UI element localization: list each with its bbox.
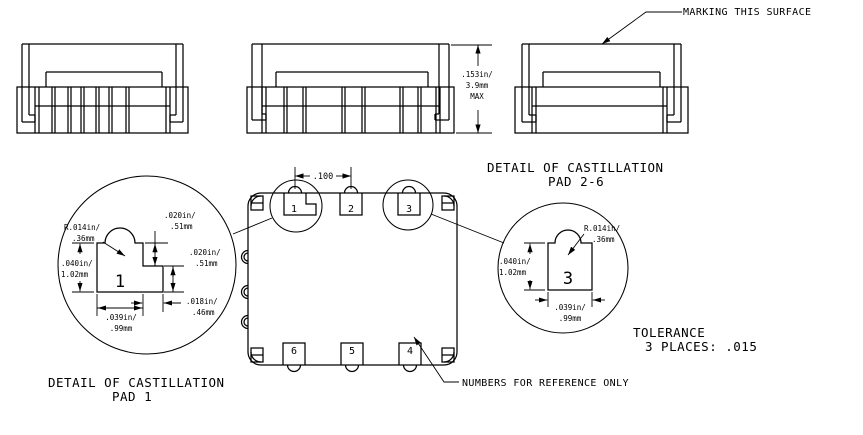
d1-step-height-line2: .51mm xyxy=(195,259,218,268)
d1-width-line2: .99mm xyxy=(110,324,133,333)
detail-pad1-title: DETAIL OF CASTILLATION xyxy=(48,375,225,390)
detail-pad1: 1 R.014in/ .36mm .020in/ .51mm .020in/ .… xyxy=(58,176,236,354)
left-edge-notches xyxy=(242,251,249,329)
detail-pad1-label: 1 xyxy=(115,272,125,292)
reference-note-label: NUMBERS FOR REFERENCE ONLY xyxy=(462,378,629,389)
d1-notch-depth-line1: .020in/ xyxy=(164,211,196,220)
detail-pad26-title: DETAIL OF CASTILLATION xyxy=(487,160,664,175)
pitch-dimension: .100 xyxy=(295,167,351,189)
pad-number-3: 3 xyxy=(406,204,412,215)
engineering-drawing: .153in/ 3.9mm MAX MARKING THIS SURFACE xyxy=(0,0,863,435)
pad-4-notch xyxy=(404,365,417,372)
cover-and-clips xyxy=(522,44,681,122)
pad3-detail-leader xyxy=(431,214,504,243)
pad-number-2: 2 xyxy=(348,204,354,215)
side-view-left xyxy=(17,44,188,133)
pad-6-notch xyxy=(288,365,301,372)
pad-number-4: 4 xyxy=(407,346,413,357)
tolerance-line1: TOLERANCE xyxy=(633,325,705,340)
pad1-detail-leader xyxy=(233,218,272,234)
corner-tabs xyxy=(251,196,454,362)
detail-pad26-subtitle: PAD 2-6 xyxy=(548,174,604,189)
d2-width-line2: .99mm xyxy=(559,314,582,323)
base-outline xyxy=(247,87,454,133)
base-outline xyxy=(17,87,188,133)
d1-step-width-line1: .018in/ xyxy=(186,297,218,306)
marking-leader xyxy=(602,12,682,44)
height-dim-line1: .153in/ xyxy=(461,70,493,79)
height-dim-line2: 3.9mm xyxy=(466,81,489,90)
d1-height-line2: 1.02mm xyxy=(61,270,89,279)
height-dimension: .153in/ 3.9mm MAX xyxy=(451,45,493,133)
pad-5-notch xyxy=(346,365,359,372)
castellation-lines xyxy=(35,87,170,133)
d2-width-line1: .039in/ xyxy=(554,303,586,312)
side-view-right xyxy=(515,44,688,133)
tolerance-line2: 3 PLACES: .015 xyxy=(645,339,757,354)
cover-and-clips xyxy=(252,44,449,120)
detail-pad26-label: 3 xyxy=(563,269,573,289)
d2-radius-line2: .36mm xyxy=(592,235,615,244)
detail-pad26: 3 R.014in/ .36mm .040in/ 1.02mm .039in/ … xyxy=(498,203,628,333)
pad-3-notch xyxy=(403,187,416,194)
d2-height-line1: .040in/ xyxy=(499,257,531,266)
pitch-dim-label: .100 xyxy=(313,172,333,182)
pad-number-5: 5 xyxy=(349,346,355,357)
corner-arcs xyxy=(251,196,454,362)
d1-radius-line2: .36mm xyxy=(72,234,95,243)
base-outline xyxy=(515,87,688,133)
plan-view: 1 2 3 6 5 4 .100 xyxy=(233,167,504,382)
d1-step-width-line2: .46mm xyxy=(192,308,215,317)
castellation-lines xyxy=(262,87,440,133)
lid-outline xyxy=(543,72,660,87)
d2-height-line2: 1.02mm xyxy=(499,268,527,277)
d1-radius-line1: R.014in/ xyxy=(64,223,100,232)
height-dim-line3: MAX xyxy=(470,92,484,101)
marking-note-label: MARKING THIS SURFACE xyxy=(683,7,811,18)
d1-height-line1: .040in/ xyxy=(61,259,93,268)
d1-width-line1: .039in/ xyxy=(105,313,137,322)
d1-step-height-line1: .020in/ xyxy=(189,248,221,257)
drawing-svg: .153in/ 3.9mm MAX MARKING THIS SURFACE xyxy=(0,0,863,435)
pad-number-1: 1 xyxy=(291,204,297,215)
marking-note: MARKING THIS SURFACE xyxy=(602,7,811,44)
d1-notch-depth-line2: .51mm xyxy=(170,222,193,231)
castellation-lines xyxy=(532,87,667,133)
lid-outline xyxy=(276,72,428,87)
pad-number-6: 6 xyxy=(291,346,297,357)
lid-outline xyxy=(46,72,162,87)
pad-1-outline xyxy=(284,193,316,215)
body-outline xyxy=(248,193,457,365)
detail-pad1-subtitle: PAD 1 xyxy=(112,389,152,404)
detail-pad1-shape xyxy=(97,228,163,292)
side-view-center xyxy=(247,44,454,133)
d2-radius-line1: R.014in/ xyxy=(584,224,620,233)
